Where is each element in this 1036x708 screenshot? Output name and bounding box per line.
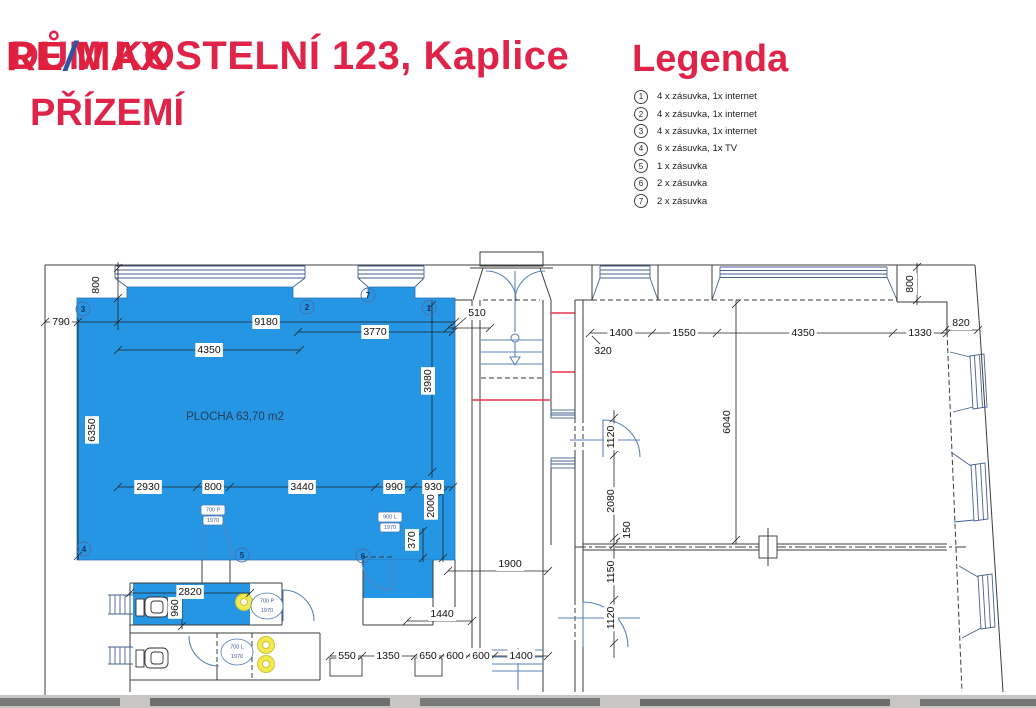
dim-1550: 1550 [672,327,696,339]
svg-text:900 L: 900 L [383,515,397,521]
dim-1440: 1440 [430,608,454,620]
dim-3980: 3980 [422,369,434,393]
svg-text:1970: 1970 [384,525,396,531]
svg-text:2: 2 [305,303,310,312]
dim-150: 150 [621,521,633,539]
dim-1150: 1150 [605,561,617,584]
room-area-label: PLOCHA 63,70 m2 [186,411,284,423]
highlighted-rooms [77,287,455,625]
dim-2930: 2930 [136,481,160,493]
dim-1120a: 1120 [605,426,617,449]
dim-1330: 1330 [908,327,932,339]
door-tag-700P: 700 P 1970 [201,505,225,525]
dim-600b: 600 [472,650,490,662]
entrance-step [480,252,543,266]
right-wall-windows [950,352,995,638]
entrance-double-door [486,271,545,332]
svg-text:1970: 1970 [207,518,219,524]
dim-320: 320 [594,345,612,357]
dim-800b: 800 [204,481,222,493]
svg-text:5: 5 [240,551,245,560]
svg-text:1970: 1970 [261,608,273,614]
dim-1120b: 1120 [605,607,617,630]
right-room [558,300,967,692]
floor-plan-page: DŮM KOSTELNÍ 123, Kaplice RE/MAX PŘÍZEMÍ… [0,0,1036,708]
svg-text:700 L: 700 L [230,645,244,651]
dim-4350: 4350 [197,344,221,356]
svg-text:700 P: 700 P [206,508,221,514]
dim-960: 960 [169,599,181,617]
dim-1400: 1400 [609,327,633,339]
dim-510: 510 [468,307,486,319]
stair-direction-arrow [510,334,520,365]
svg-text:700 P: 700 P [260,599,275,605]
door-arc-wc-lower [189,636,219,666]
stair-cut-lines [472,313,575,400]
dim-2820: 2820 [178,586,202,598]
dim-6350: 6350 [86,418,98,442]
toilet [136,597,168,617]
dim-930: 930 [424,481,442,493]
toilet [136,648,168,668]
dim-820: 820 [952,317,970,329]
dim-2000: 2000 [425,494,437,518]
dim-650: 650 [419,650,437,662]
dim-800-left: 800 [90,276,102,294]
vestibule-fill [363,560,433,598]
intermediate-steps [551,410,575,468]
svg-text:1: 1 [427,304,432,313]
dim-9180: 9180 [254,316,278,328]
svg-text:1970: 1970 [231,654,243,660]
door-tag-700P-wc: 700 P 1970 [251,593,283,619]
wall-window [108,595,133,664]
dim-4350b: 4350 [791,327,815,339]
dim-800-right: 800 [904,275,916,293]
svg-text:7: 7 [366,291,371,300]
door-arc-wc-upper [283,590,314,621]
dim-2080: 2080 [605,489,617,513]
dim-790: 790 [52,316,70,328]
dim-1400b: 1400 [509,650,533,662]
dim-3770: 3770 [363,326,387,338]
svg-text:4: 4 [82,545,87,554]
svg-text:3: 3 [81,305,86,314]
dim-370: 370 [406,531,418,549]
svg-text:6: 6 [361,552,366,561]
dim-550: 550 [338,650,356,662]
dim-1900: 1900 [498,558,522,570]
floor-plan-drawing: PLOCHA 63,70 m2 [0,0,1036,708]
dim-600a: 600 [446,650,464,662]
dim-990: 990 [385,481,403,493]
scan-edge-band [0,695,1036,708]
door-tag-900L: 900 L 1970 [378,512,402,532]
door-tag-700L-wc: 700 L 1970 [221,639,253,665]
dim-3440: 3440 [290,481,314,493]
dim-1350: 1350 [376,650,400,662]
dim-6040: 6040 [721,410,733,434]
